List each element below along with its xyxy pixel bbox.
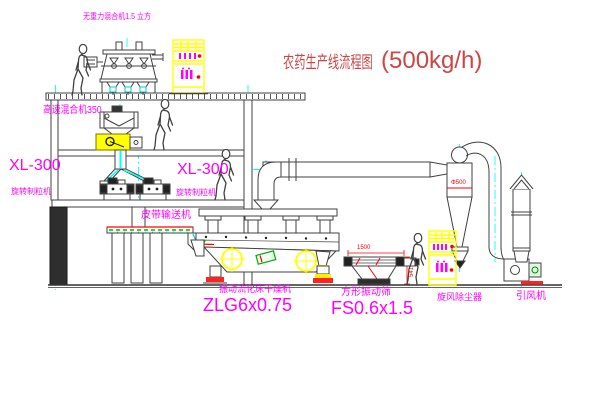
title-text: 农药生产线流程图 [283,48,373,73]
label-dryer-name: 振动流化床干燥机 [219,285,291,294]
label-granulator-left-model: XL-300 [9,158,61,174]
drawing-title: 农药生产线流程图(500kg/h) [283,47,482,75]
exhaust-duct [254,158,447,209]
label-high-speed-mixer: 高速混合机350 [43,106,110,116]
title-capacity: (500kg/h) [381,47,482,75]
fluid-bed-dryer [191,209,339,283]
label-gravity-mixer: 无重力混合机1.5 立方 [83,13,160,21]
label-cyclone: 旋风除尘器 [437,293,482,302]
cyclone-separator [447,147,472,268]
belt-conveyor [107,227,204,283]
drawing-canvas: 农药生产线流程图(500kg/h) 无重力混合机1.5 立方 高速混合机350 … [0,0,600,403]
label-belt-conveyor: 皮带输送机 [141,211,191,221]
label-fan: 引风机 [516,292,546,302]
label-granulator-left-name: 旋转制粒机 [11,188,51,196]
control-cabinet-2 [429,231,456,285]
exhaust-stack [510,175,533,262]
label-dryer-model: ZLG6x0.75 [203,296,292,314]
induced-draft-fan [504,259,546,285]
dim-sieve-height: 541 [409,267,415,277]
label-sieve-name: 方形振动筛 [341,288,391,298]
label-sieve-model: FS0.6x1.5 [331,299,413,317]
gravity-free-mixer [84,42,163,95]
ground-line [48,285,562,288]
person-figure [72,44,91,95]
dim-sieve-length: 1500 [357,245,370,251]
person-figure [154,99,173,150]
control-cabinet-1 [169,40,208,94]
label-granulator-mid-name: 旋转制粒机 [176,189,216,197]
dim-cyclone-dia: Φ500 [451,180,466,186]
label-granulator-mid-model: XL-300 [177,162,229,178]
